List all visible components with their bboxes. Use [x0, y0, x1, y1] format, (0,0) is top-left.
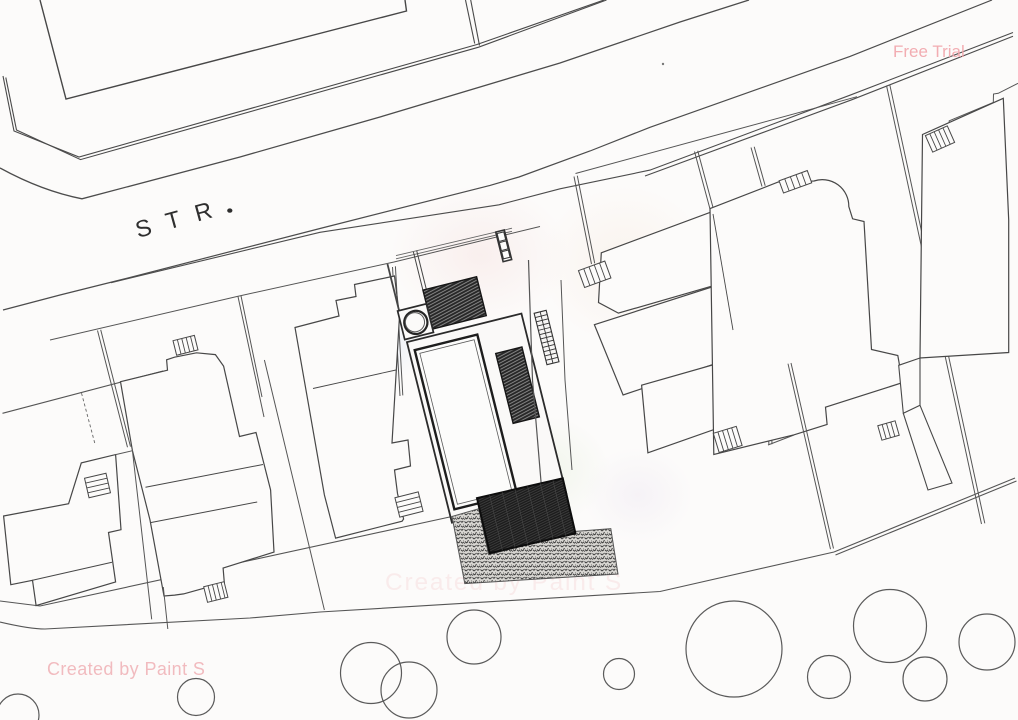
svg-text:Free Trial: Free Trial — [893, 42, 965, 61]
svg-text:Created by Paint S: Created by Paint S — [47, 659, 205, 679]
